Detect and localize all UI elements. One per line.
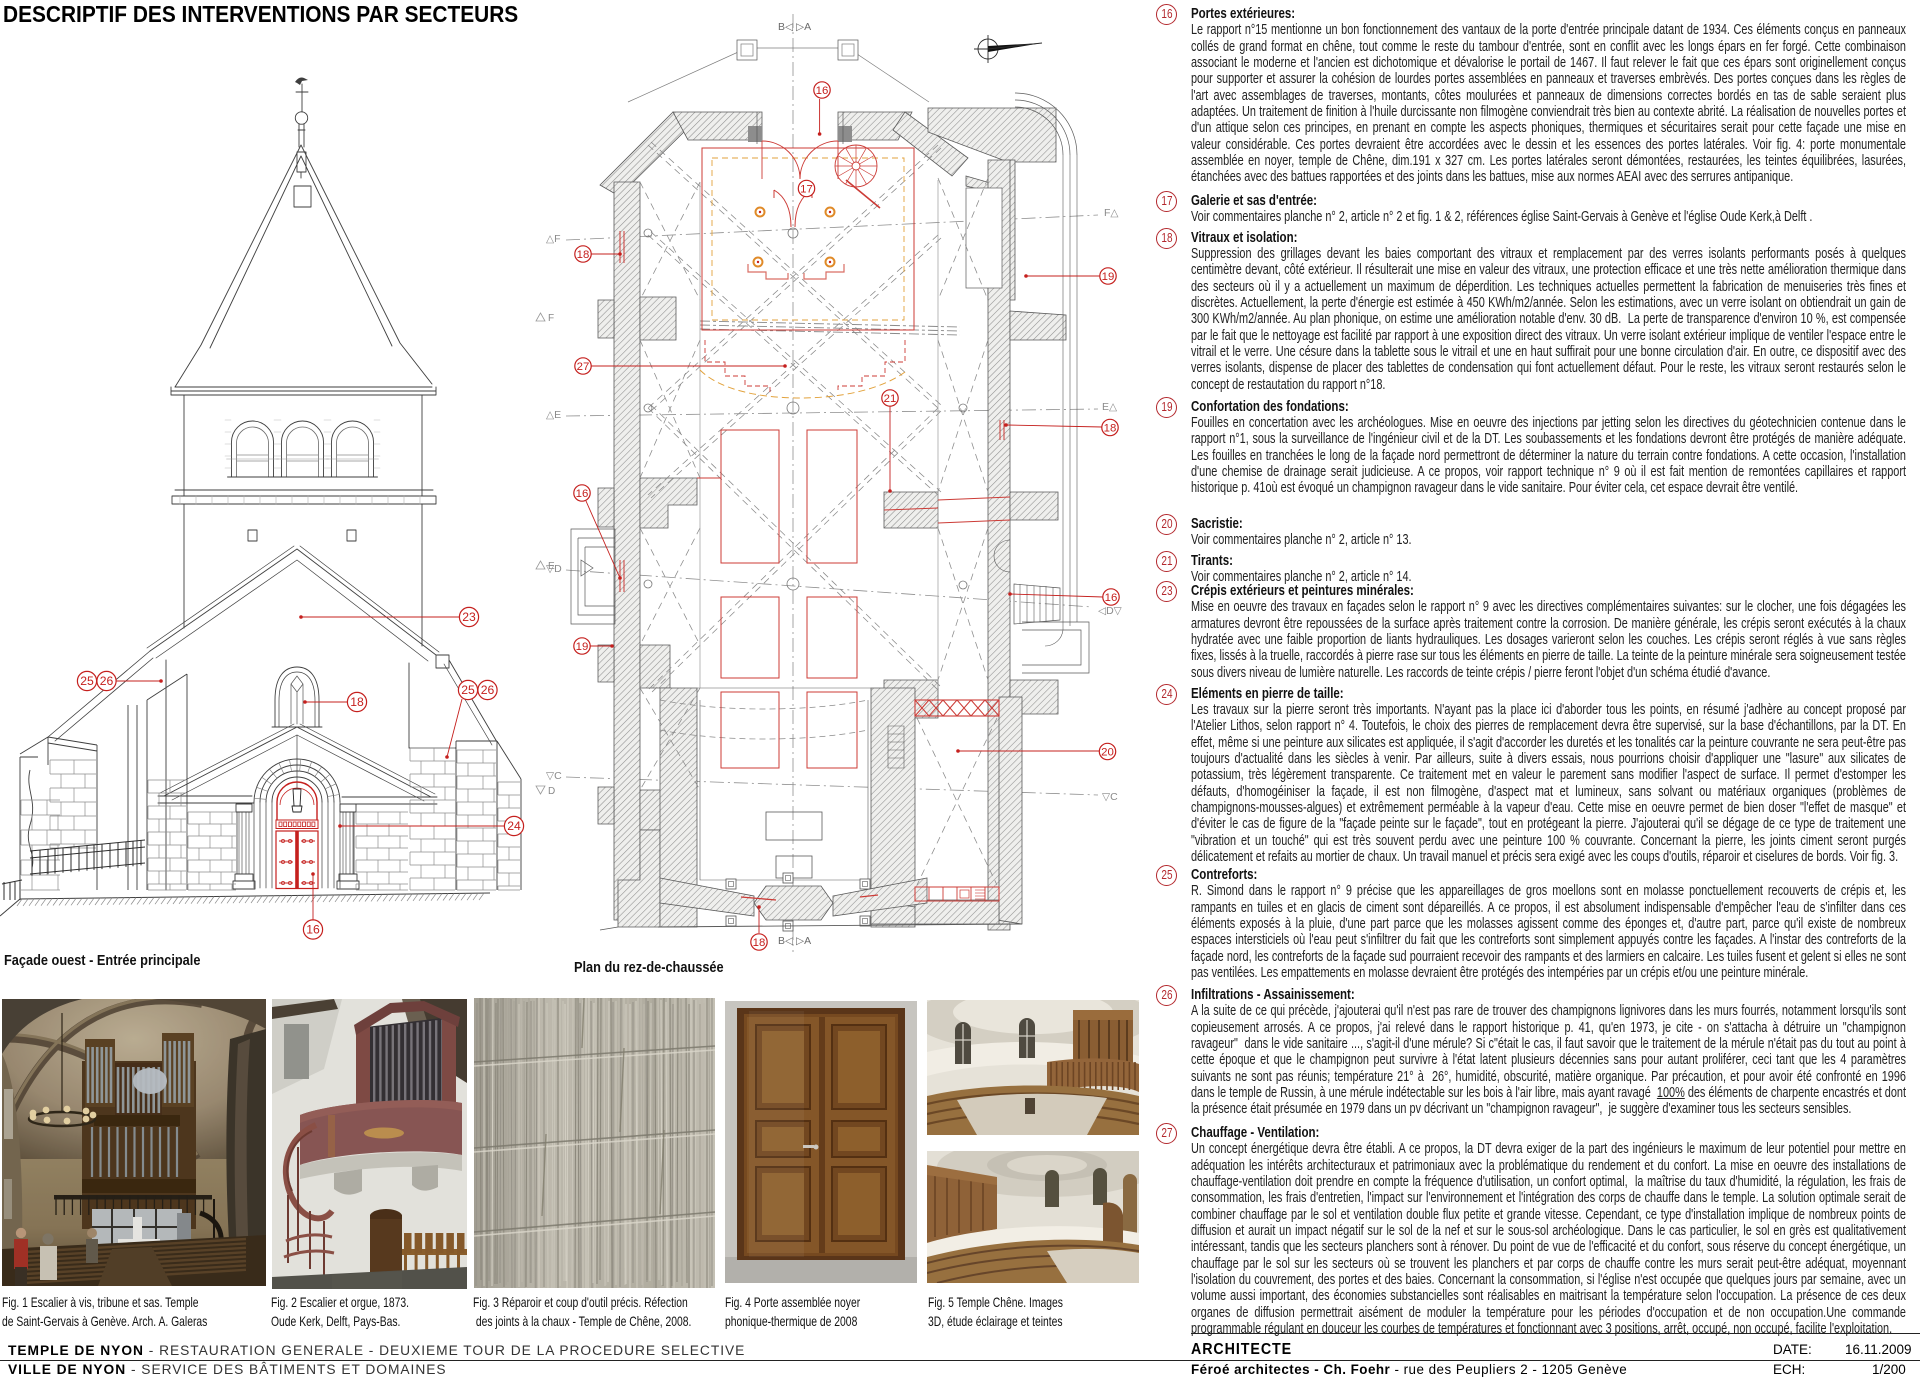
svg-text:E△: E△	[1102, 401, 1118, 413]
svg-text:24: 24	[507, 819, 521, 833]
svg-text:18: 18	[577, 249, 590, 261]
svg-text:16: 16	[576, 488, 589, 500]
svg-text:F△: F△	[1104, 207, 1119, 219]
svg-text:▷A: ▷A	[796, 935, 811, 947]
svg-text:27: 27	[577, 361, 590, 373]
svg-text:19: 19	[576, 641, 589, 653]
svg-text:16: 16	[816, 85, 829, 97]
svg-text:▷A: ▷A	[796, 21, 811, 33]
svg-text:F: F	[548, 313, 554, 324]
svg-text:23: 23	[462, 610, 476, 624]
svg-text:△F: △F	[546, 233, 561, 245]
svg-text:18: 18	[753, 937, 766, 949]
svg-text:26: 26	[100, 674, 114, 688]
svg-text:25: 25	[461, 683, 475, 697]
svg-text:◁D▽: ◁D▽	[1098, 605, 1123, 617]
svg-text:19: 19	[1102, 271, 1115, 283]
svg-text:D: D	[548, 786, 555, 797]
svg-text:18: 18	[350, 695, 364, 709]
svg-text:26: 26	[481, 683, 495, 697]
svg-text:B◁: B◁	[778, 21, 794, 33]
svg-text:16: 16	[306, 923, 320, 937]
svg-text:▽D: ▽D	[546, 563, 562, 575]
svg-text:17: 17	[800, 183, 813, 195]
svg-text:▽C: ▽C	[546, 770, 562, 782]
svg-text:16: 16	[1105, 592, 1118, 604]
svg-text:B◁: B◁	[778, 935, 794, 947]
svg-text:△E: △E	[546, 409, 561, 421]
svg-text:21: 21	[884, 393, 897, 405]
svg-text:25: 25	[80, 674, 94, 688]
svg-text:20: 20	[1101, 746, 1114, 758]
svg-text:18: 18	[1104, 422, 1117, 434]
svg-text:▽C: ▽C	[1102, 791, 1118, 803]
